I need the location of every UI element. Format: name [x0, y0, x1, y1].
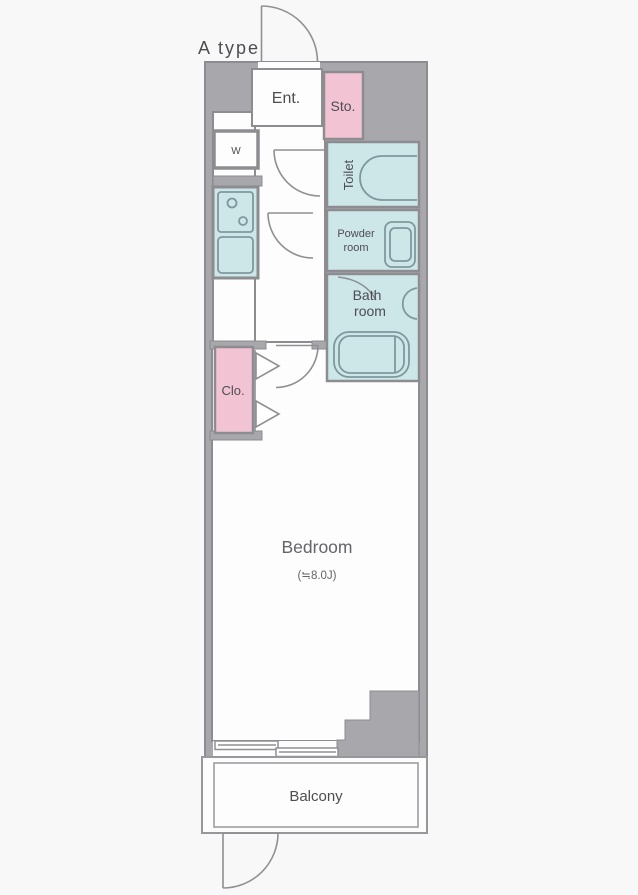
- bath-room-label-line2: room: [354, 303, 386, 319]
- kitchen-stove-space: [218, 237, 253, 273]
- powder-room-label-line1: Powder: [337, 228, 375, 240]
- toilet-label: Toilet: [341, 159, 356, 190]
- bedroom-label: Bedroom: [281, 537, 352, 557]
- kitchen-unit: [213, 187, 258, 278]
- powder-room-label-line2: room: [343, 242, 368, 254]
- kitchen-sink: [218, 192, 253, 232]
- corridor: [255, 117, 325, 347]
- balcony-label: Balcony: [289, 788, 343, 805]
- kitchen-wall-stub: [213, 176, 262, 186]
- balcony-door-arc: [223, 833, 278, 888]
- storage-label: Sto.: [331, 98, 356, 114]
- plan-type-title: A type: [198, 38, 260, 58]
- washer-label: W: [231, 146, 241, 157]
- bedroom-size-label: (≒8.0J): [297, 570, 336, 582]
- closet-label: Clo.: [221, 383, 244, 398]
- bath-room-label-line1: Bath: [353, 287, 382, 303]
- floorplan-canvas: A type: [0, 0, 638, 895]
- entrance-label: Ent.: [272, 90, 300, 107]
- floorplan-drawing: A type: [0, 0, 638, 895]
- entrance-door-arc: [262, 6, 318, 62]
